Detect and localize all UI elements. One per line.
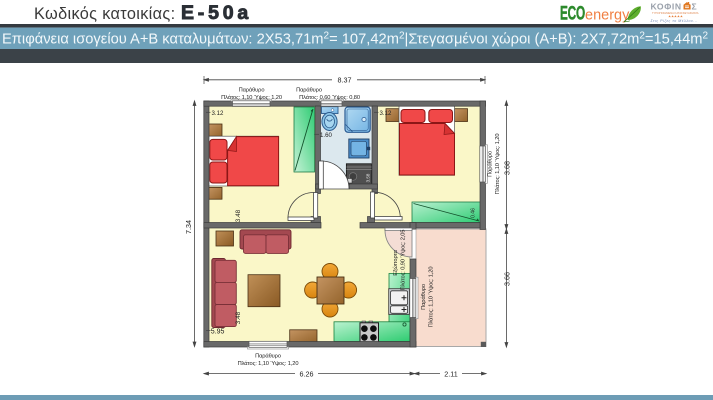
svg-text:★★★★★: ★★★★★ — [668, 15, 683, 19]
svg-text:3.48: 3.48 — [235, 209, 242, 222]
svg-text:Πλάτος: 1,10 Ύψος: 1,20: Πλάτος: 1,10 Ύψος: 1,20 — [221, 94, 282, 101]
svg-text:7.34: 7.34 — [184, 220, 193, 234]
svg-text:Παράθυρο: Παράθυρο — [255, 353, 281, 360]
svg-text:Πλάτος: 0,90 Ύψος: 2,05: Πλάτος: 0,90 Ύψος: 2,05 — [400, 230, 407, 291]
svg-text:3.12: 3.12 — [380, 110, 392, 117]
svg-text:0.46: 0.46 — [471, 208, 477, 218]
svg-text:2.11: 2.11 — [444, 369, 457, 378]
svg-text:Πλάτος: 0,60 Ύψος: 0,80: Πλάτος: 0,60 Ύψος: 0,80 — [299, 94, 360, 101]
svg-text:Πλάτος: 1,10 Ύψος: 1,20: Πλάτος: 1,10 Ύψος: 1,20 — [238, 360, 299, 367]
svg-text:6.26: 6.26 — [300, 369, 314, 378]
svg-text:3.58: 3.58 — [365, 173, 370, 182]
svg-text:Πλάτος: 1,10 Ύψος: 1,20: Πλάτος: 1,10 Ύψος: 1,20 — [427, 267, 434, 328]
svg-text:1.60: 1.60 — [320, 132, 332, 139]
svg-text:3.12: 3.12 — [212, 110, 224, 117]
svg-text:energy: energy — [585, 7, 630, 23]
svg-text:Παράθυρο: Παράθυρο — [486, 151, 493, 177]
svg-text:E-50a: E-50a — [181, 2, 252, 24]
svg-text:3.48: 3.48 — [235, 311, 242, 324]
svg-text:3.68: 3.68 — [503, 161, 512, 175]
svg-text:Παράθυρο: Παράθυρο — [420, 284, 427, 310]
svg-text:Επιφάνεια ισογείου Α+Β καταλυμ: Επιφάνεια ισογείου Α+Β καταλυμάτων: 2X53… — [2, 31, 709, 48]
svg-text:Εξώπορτα: Εξώπορτα — [392, 249, 399, 275]
svg-text:3.66: 3.66 — [503, 272, 512, 286]
svg-text:ECO: ECO — [560, 4, 585, 24]
svg-text:Παράθυρο: Παράθυρο — [296, 87, 322, 94]
svg-text:Παράθυρο: Παράθυρο — [239, 87, 265, 94]
svg-text:Κωδικός κατοικίας:: Κωδικός κατοικίας: — [34, 5, 176, 23]
svg-text:Σ: Σ — [692, 1, 697, 11]
svg-text:Στις Ρίζες το Μέλλον...: Στις Ρίζες το Μέλλον... — [650, 19, 699, 23]
svg-text:5.95: 5.95 — [211, 328, 225, 335]
svg-text:Πλάτος: 1,10 Ύψος: 1,20: Πλάτος: 1,10 Ύψος: 1,20 — [494, 134, 501, 195]
svg-text:8.37: 8.37 — [338, 76, 352, 85]
svg-text:ΚΟΦΙΝ: ΚΟΦΙΝ — [651, 1, 682, 11]
